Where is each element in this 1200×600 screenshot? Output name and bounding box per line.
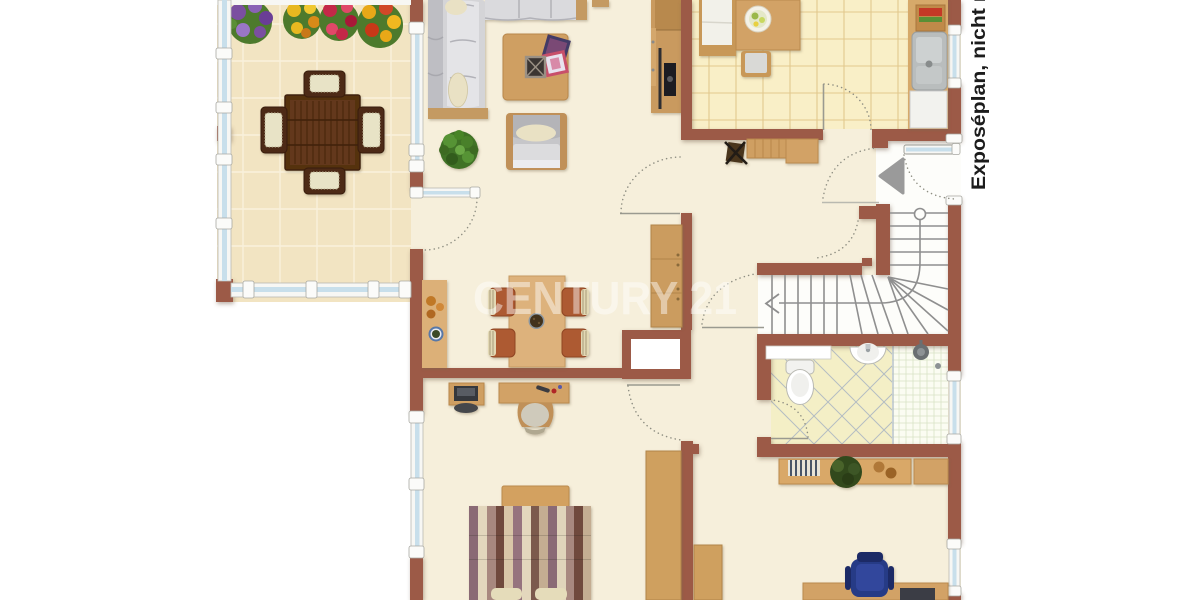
svg-text:CENTURY 21: CENTURY 21 bbox=[473, 272, 737, 324]
svg-text:Exposéplan, nicht maßstabsgetr: Exposéplan, nicht maßstabsgetreu bbox=[969, 0, 990, 190]
